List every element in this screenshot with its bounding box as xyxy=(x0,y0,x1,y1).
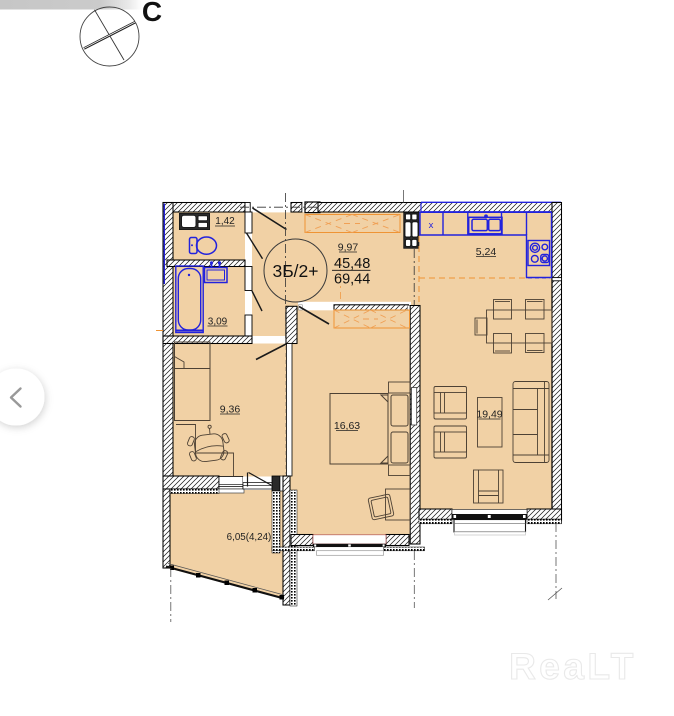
svg-text:ReaLT: ReaLT xyxy=(509,646,637,687)
svg-text:x: x xyxy=(429,220,434,231)
svg-text:С: С xyxy=(142,0,162,27)
svg-text:3Б/2+: 3Б/2+ xyxy=(272,261,318,281)
svg-text:69,44: 69,44 xyxy=(334,272,370,288)
svg-text:1,42: 1,42 xyxy=(215,216,235,227)
svg-text:6,05(4,24): 6,05(4,24) xyxy=(227,532,272,543)
svg-text:45,48: 45,48 xyxy=(334,256,370,272)
